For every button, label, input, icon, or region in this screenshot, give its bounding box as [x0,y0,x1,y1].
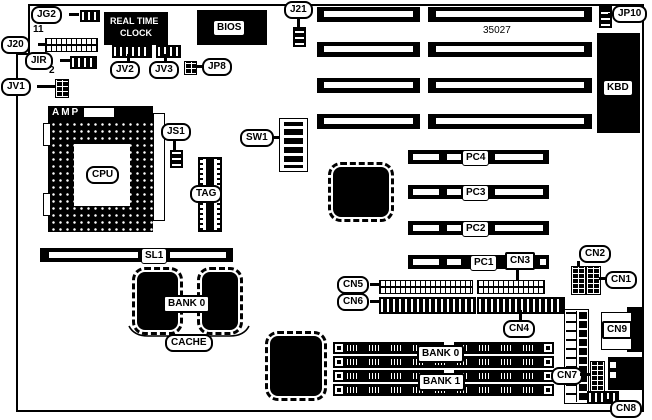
din-connector-pin-b [610,372,616,378]
cn6-pointer [370,300,380,303]
pci-slot-pc3-key-a [413,189,439,195]
j20-pointer [38,43,47,46]
pci-slot-pc3-key-b [447,189,461,195]
board-edge-left-lower [16,53,18,412]
jv3-callout: JV3 [149,61,179,79]
din-connector-pin-a [610,362,616,368]
cn7-header [590,361,605,392]
simm-latch-icon [335,358,343,366]
cn3-pointer [516,269,519,281]
jv1-callout: JV1 [1,78,31,96]
sl1-slot-key-right [170,252,226,258]
cache-bank-label: BANK 0 [163,295,210,313]
chipset-chip-upper [333,167,389,217]
pci-slot-pc1-key-a [413,259,439,265]
rtc-label-line1: REAL TIME [110,16,158,26]
pc2-label: PC2 [462,221,489,237]
cn7-callout: CN7 [551,367,583,385]
power-connector-pins [579,311,587,402]
simm-latch-icon [335,344,343,352]
cn2-pointer [577,261,580,267]
jir-header [70,56,97,69]
j20-callout: J20 [1,36,30,54]
jv2-callout: JV2 [110,61,140,79]
j21-callout: J21 [284,1,313,19]
pc4-label: PC4 [462,150,489,166]
simm-latch-icon [544,344,552,352]
jg2-pointer [69,13,79,16]
pc3-label: PC3 [462,185,489,201]
board-edge-bottom [16,410,644,412]
pci-slot-pc4-key-c [495,154,543,160]
cn8-pointer [606,399,609,403]
jir-pointer [60,59,70,62]
isa-slot-1-long-key [436,11,584,17]
isa-slot-4-long-key [436,118,584,124]
cpu-socket-tab-lower [43,193,51,216]
cn2-callout: CN2 [579,245,611,263]
isa-slot-4-short-key [324,118,413,124]
pci-slot-pc1-key-c [540,259,546,265]
cn6-callout: CN6 [337,293,369,311]
pci-slot-pc4-key-a [413,154,439,160]
j20-header [45,38,98,52]
kbd-label: KBD [603,80,633,96]
j21-header [293,27,306,47]
jp10-callout: JP10 [612,5,647,23]
board-edge-top [28,4,644,6]
jv3-header [156,45,181,58]
pci-slot-pc4-key-b [447,154,461,160]
bios-label: BIOS [213,20,245,36]
rtc-label-line2: CLOCK [120,28,152,38]
sl1-label: SL1 [141,248,167,264]
power-connector-sockets [566,311,577,402]
simm-latch-icon [335,372,343,380]
amp-label: AMP [52,107,80,118]
jv1-header [55,79,69,98]
cn1-callout: CN1 [605,271,637,289]
cn8-callout: CN8 [610,400,642,418]
cn5-callout: CN5 [337,276,369,294]
chipset-chip-lower [270,336,322,396]
simm-latch-icon [544,358,552,366]
isa-slot-2-long-key [436,46,584,52]
pc1-label: PC1 [470,255,497,271]
pci-slot-pc2-key-c [495,225,543,231]
isa-slot-1-short-key [324,11,413,17]
board-part-number: 35027 [483,25,511,36]
jp8-header [184,61,197,75]
jp8-callout: JP8 [202,58,232,76]
isa-slot-3-long-key [436,82,584,88]
cn4-callout: CN4 [503,320,535,338]
simm-bank0-label: BANK 0 [417,345,464,363]
simm-latch-icon [544,386,552,394]
jv2-header [112,45,152,58]
motherboard-diagram: JG2 11 J20 JIR 2 JV1 JV2 JV3 JP8 REAL TI… [0,0,652,420]
simm-latch-icon [335,386,343,394]
tag-label: TAG [190,185,222,203]
isa-slot-3-short-key [324,82,413,88]
cn7-pointer [580,373,590,376]
cpu-socket-tab-upper [43,123,51,146]
power-connector [564,309,589,404]
pci-slot-pc2-key-b [447,225,461,231]
jp10-header [599,6,612,28]
sl1-slot-key-left [49,252,138,258]
cn5-pointer [370,283,380,286]
j20-pin-count: 11 [33,24,44,35]
js1-header [170,150,183,168]
cn3-header [477,280,545,294]
cn2-header [571,266,586,295]
simm-bank1-label: BANK 1 [418,373,465,391]
pci-slot-pc2-key-a [413,225,439,231]
sw1-dip-switch [279,118,308,172]
cn5-header [379,280,473,294]
jv1-pointer [37,85,55,88]
sw1-callout: SW1 [240,129,274,147]
pci-slot-pc1-key-b [447,259,461,265]
cn6-header [379,297,476,314]
jg2-header [80,10,100,22]
cache-callout: CACHE [165,334,213,352]
pci-slot-pc3-key-c [495,189,543,195]
js1-callout: JS1 [161,123,191,141]
cn3-callout: CN3 [505,252,535,270]
cpu-socket-top-key [84,108,114,117]
jir-callout: JIR [25,52,53,70]
cpu-label: CPU [86,166,119,184]
board-edge-right [642,4,644,412]
cn1-header [586,266,601,295]
jg2-callout: JG2 [31,6,62,24]
isa-slot-2-short-key [324,46,413,52]
cn9-callout: CN9 [602,321,632,339]
